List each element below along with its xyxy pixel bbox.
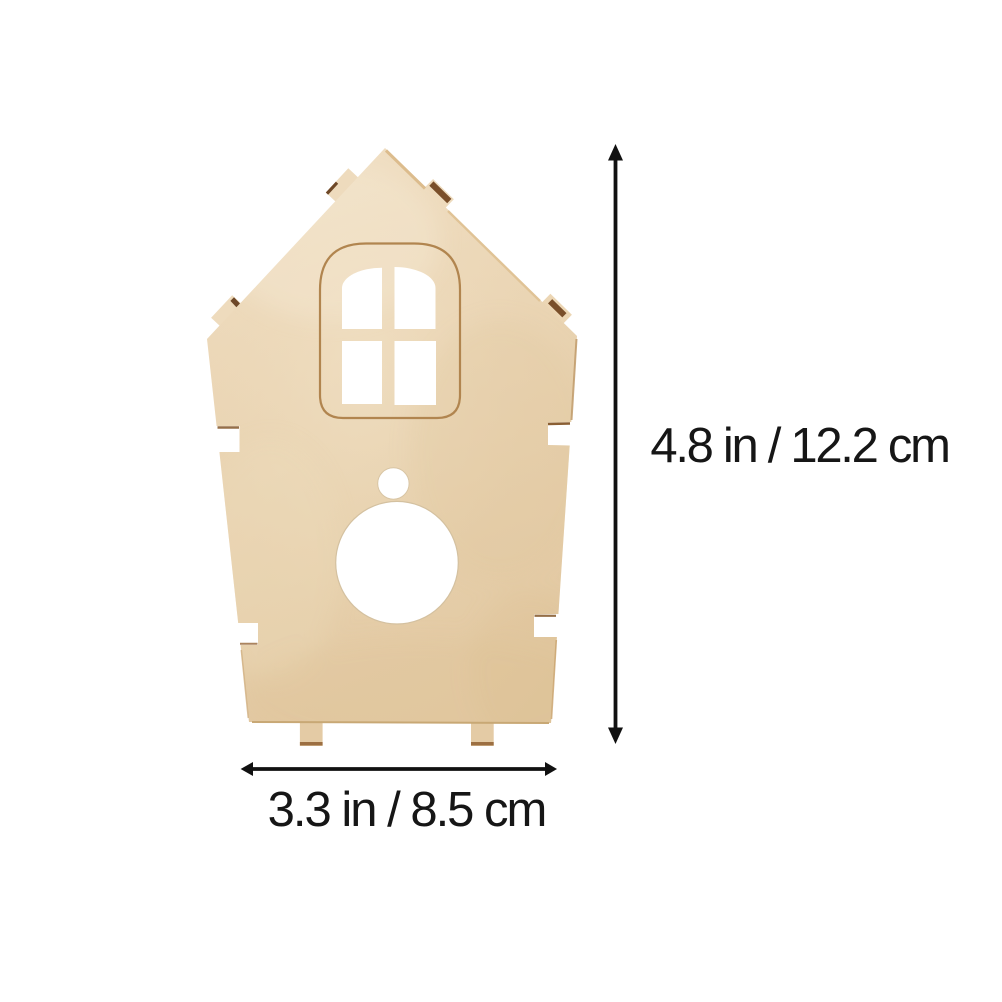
svg-text:4.8 in / 12.2 cm: 4.8 in / 12.2 cm — [650, 419, 948, 473]
svg-text:3.3 in / 8.5 cm: 3.3 in / 8.5 cm — [268, 783, 546, 837]
